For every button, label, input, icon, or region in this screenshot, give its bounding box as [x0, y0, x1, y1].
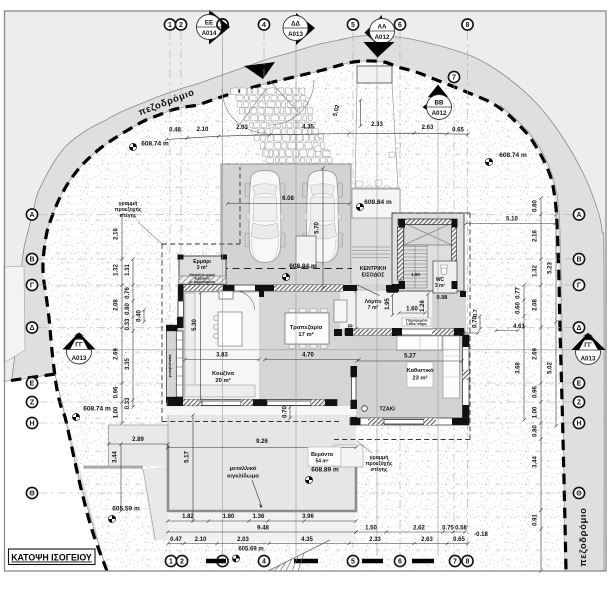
- svg-text:9.26: 9.26: [256, 439, 268, 445]
- svg-text:ΚΑΤΟΨΗ ΙΣΟΓΕΙΟΥ: ΚΑΤΟΨΗ ΙΣΟΓΕΙΟΥ: [11, 553, 92, 563]
- svg-text:608.74 m: 608.74 m: [141, 141, 169, 148]
- svg-text:2: 2: [179, 22, 183, 29]
- svg-text:3.83: 3.83: [216, 353, 228, 359]
- svg-text:6: 6: [398, 559, 402, 566]
- svg-text:με θερμοσίφωνα: με θερμοσίφωνα: [189, 280, 214, 284]
- svg-text:Ε: Ε: [30, 381, 35, 388]
- svg-text:5: 5: [351, 22, 355, 29]
- svg-text:0.48: 0.48: [169, 128, 181, 134]
- svg-text:6.08: 6.08: [282, 196, 294, 202]
- svg-text:0.96: 0.96: [533, 386, 539, 398]
- svg-text:ΔΔ: ΔΔ: [291, 21, 300, 28]
- svg-text:20 m²: 20 m²: [215, 377, 230, 384]
- svg-text:στέγης: στέγης: [120, 213, 137, 219]
- svg-text:0.80: 0.80: [533, 425, 539, 437]
- svg-text:ΚΕΝΤΡΙΚΗ: ΚΕΝΤΡΙΚΗ: [360, 266, 387, 272]
- svg-text:605.69 m: 605.69 m: [238, 547, 263, 553]
- svg-text:2.63: 2.63: [421, 537, 433, 543]
- svg-text:Καθιστικό: Καθιστικό: [406, 368, 434, 374]
- svg-text:5.27: 5.27: [404, 354, 416, 360]
- svg-text:1.36: 1.36: [253, 514, 265, 520]
- svg-text:0.70: 0.70: [283, 406, 289, 418]
- svg-text:Η: Η: [29, 421, 34, 428]
- svg-text:Θ: Θ: [576, 491, 582, 498]
- svg-text:3.44: 3.44: [533, 456, 539, 468]
- svg-text:1: 1: [169, 559, 173, 566]
- svg-text:Ε: Ε: [577, 381, 582, 388]
- svg-text:2.16: 2.16: [533, 230, 539, 242]
- svg-text:ΓΓ: ΓΓ: [75, 342, 83, 349]
- svg-text:κιγκλίδωμα: κιγκλίδωμα: [227, 474, 259, 480]
- svg-text:Θ: Θ: [29, 491, 35, 498]
- svg-text:φωτοβολταϊκά: φωτοβολταϊκά: [168, 354, 172, 378]
- svg-text:ΕΕ: ΕΕ: [205, 20, 213, 27]
- svg-text:5.17: 5.17: [185, 451, 191, 463]
- svg-text:7 m²: 7 m²: [368, 305, 379, 311]
- svg-text:4.61: 4.61: [513, 324, 525, 330]
- svg-text:2.69: 2.69: [114, 348, 120, 360]
- svg-text:3.68: 3.68: [516, 362, 522, 374]
- svg-text:2.03: 2.03: [236, 125, 248, 131]
- svg-text:608.84 m: 608.84 m: [289, 263, 317, 270]
- svg-text:πεζοδρόμιο: πεζοδρόμιο: [578, 507, 589, 566]
- svg-text:0.80: 0.80: [125, 303, 131, 315]
- svg-text:Ζ: Ζ: [577, 400, 582, 407]
- svg-text:στέγης: στέγης: [371, 467, 388, 473]
- svg-text:μεταλλικό: μεταλλικό: [230, 466, 257, 472]
- svg-text:1.26: 1.26: [420, 300, 426, 312]
- svg-text:3 m²: 3 m²: [435, 283, 446, 289]
- svg-text:0.33: 0.33: [125, 318, 131, 330]
- svg-text:7: 7: [452, 75, 456, 82]
- svg-text:2.08: 2.08: [533, 299, 539, 311]
- svg-text:0.40: 0.40: [137, 310, 143, 322]
- svg-text:8: 8: [466, 22, 470, 29]
- svg-text:2.89: 2.89: [132, 437, 144, 443]
- svg-text:2: 2: [180, 559, 184, 566]
- svg-text:3 m²: 3 m²: [197, 265, 208, 271]
- svg-text:Δ: Δ: [576, 325, 581, 332]
- svg-text:1.95: 1.95: [385, 298, 391, 310]
- svg-text:Β: Β: [29, 257, 34, 264]
- svg-text:ΤΖΑΚΙ: ΤΖΑΚΙ: [380, 407, 396, 413]
- svg-text:605.59 m: 605.59 m: [112, 506, 140, 513]
- svg-text:5.30: 5.30: [192, 319, 198, 331]
- svg-text:0.58: 0.58: [455, 526, 467, 532]
- svg-text:0.7: 0.7: [473, 309, 479, 317]
- svg-text:Ζ: Ζ: [30, 400, 35, 407]
- svg-text:23 m²: 23 m²: [412, 375, 427, 382]
- svg-text:2.10: 2.10: [197, 127, 209, 133]
- svg-text:ΓΓ: ΓΓ: [584, 342, 592, 349]
- svg-text:-0.18: -0.18: [474, 532, 488, 538]
- svg-text:2.10: 2.10: [195, 537, 207, 543]
- svg-text:A012: A012: [432, 110, 447, 117]
- svg-text:5: 5: [351, 559, 355, 566]
- svg-text:17 m²: 17 m²: [298, 331, 313, 338]
- svg-text:A013: A013: [581, 356, 596, 363]
- svg-text:0.76: 0.76: [125, 287, 131, 299]
- svg-text:608.84 m: 608.84 m: [364, 199, 392, 206]
- svg-text:0.65: 0.65: [453, 537, 465, 543]
- svg-text:4.35: 4.35: [301, 537, 313, 543]
- svg-text:7: 7: [453, 559, 457, 566]
- svg-text:2.03: 2.03: [237, 537, 249, 543]
- svg-text:2.16: 2.16: [114, 228, 120, 240]
- svg-text:3.35: 3.35: [125, 358, 131, 370]
- svg-text:AA: AA: [378, 24, 387, 31]
- svg-text:1.32: 1.32: [533, 265, 539, 277]
- svg-text:1.50: 1.50: [365, 526, 377, 532]
- svg-text:1: 1: [168, 22, 172, 29]
- svg-text:1.00: 1.00: [114, 406, 120, 418]
- svg-text:0.33: 0.33: [125, 397, 131, 409]
- svg-text:1.60: 1.60: [406, 307, 418, 313]
- svg-text:2.69: 2.69: [533, 348, 539, 360]
- svg-text:0.75: 0.75: [442, 526, 454, 532]
- svg-text:2.63: 2.63: [422, 125, 434, 131]
- svg-text:ΕΙΣΟΔΟΣ: ΕΙΣΟΔΟΣ: [362, 273, 385, 279]
- svg-text:6: 6: [398, 22, 402, 29]
- svg-text:4.70: 4.70: [302, 353, 314, 359]
- svg-text:0.47: 0.47: [170, 537, 182, 543]
- svg-text:2.33: 2.33: [369, 537, 381, 543]
- svg-text:5.02: 5.02: [548, 362, 554, 374]
- svg-text:8: 8: [466, 559, 470, 566]
- svg-text:9.48: 9.48: [257, 526, 269, 532]
- svg-text:5.70: 5.70: [315, 222, 321, 234]
- svg-text:3.96: 3.96: [302, 514, 314, 520]
- svg-text:Τραπεζαρία: Τραπεζαρία: [290, 325, 323, 331]
- svg-text:0.96: 0.96: [114, 386, 120, 398]
- svg-text:608.89 m: 608.89 m: [311, 467, 339, 474]
- svg-text:0.65: 0.65: [452, 128, 464, 134]
- svg-text:A013: A013: [288, 31, 303, 38]
- svg-text:3.70: 3.70: [349, 324, 355, 336]
- svg-text:2.33: 2.33: [371, 122, 383, 128]
- svg-text:1.31: 1.31: [125, 264, 131, 276]
- svg-text:Α: Α: [29, 212, 34, 219]
- svg-text:Η: Η: [576, 421, 581, 428]
- svg-text:5.10: 5.10: [506, 217, 518, 223]
- svg-text:0.77: 0.77: [516, 287, 522, 299]
- svg-text:A014: A014: [202, 30, 217, 37]
- svg-text:ΒΒ: ΒΒ: [435, 100, 444, 107]
- svg-text:4: 4: [262, 22, 266, 29]
- svg-text:Β: Β: [576, 257, 581, 264]
- svg-text:5.23: 5.23: [548, 262, 554, 274]
- svg-text:608.74 m: 608.74 m: [499, 152, 527, 159]
- svg-text:54 m²: 54 m²: [315, 459, 328, 465]
- svg-text:3.44: 3.44: [113, 451, 119, 463]
- svg-text:2.08: 2.08: [114, 299, 120, 311]
- svg-text:4: 4: [262, 559, 266, 566]
- svg-text:1.90: 1.90: [411, 272, 420, 277]
- svg-text:1.32: 1.32: [114, 264, 120, 276]
- svg-text:Κουζίνα: Κουζίνα: [212, 371, 234, 377]
- svg-text:608.74 m: 608.74 m: [83, 406, 111, 413]
- svg-text:A012: A012: [375, 34, 390, 41]
- svg-text:2.62: 2.62: [413, 526, 425, 532]
- svg-text:Α: Α: [576, 212, 581, 219]
- svg-text:1.82: 1.82: [182, 514, 194, 520]
- svg-text:0.80: 0.80: [533, 200, 539, 212]
- svg-text:Βεράντα: Βεράντα: [311, 452, 334, 458]
- svg-text:1.80: 1.80: [223, 514, 235, 520]
- svg-text:0.91: 0.91: [533, 514, 539, 526]
- svg-text:4.35: 4.35: [302, 125, 314, 131]
- svg-text:Δ: Δ: [29, 325, 34, 332]
- svg-text:1.40εκ. πάχος: 1.40εκ. πάχος: [406, 322, 427, 326]
- svg-text:1.00: 1.00: [533, 406, 539, 418]
- svg-text:0.60: 0.60: [516, 302, 522, 314]
- svg-text:0.98: 0.98: [437, 295, 448, 301]
- svg-text:A013: A013: [72, 355, 87, 362]
